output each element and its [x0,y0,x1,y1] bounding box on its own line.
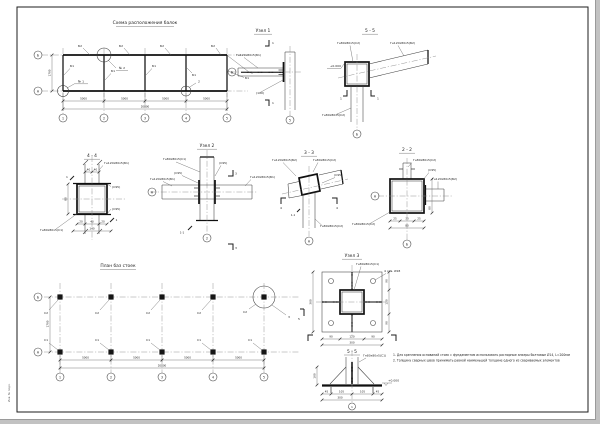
beam-label: Б1 [70,64,74,68]
dim: 80 [405,224,409,228]
beam-label: Б2 [119,44,123,48]
profile-callout: Гн80х80х5(С1) [163,157,186,161]
drawing-sheet-page: Инв. № подл. Схема расположения балок Б [0,0,600,424]
node-callout: № 1 [78,80,84,84]
beam-label: Б1 [245,76,249,80]
post-label: С1 [197,338,201,342]
dim-height: 1700 [48,69,52,76]
view-title: 2 - 2 [402,147,412,153]
view-title: План баз стоек [100,262,136,269]
profile-callout: Гн80х80х5(С2) [313,158,336,162]
column-marker [108,294,113,299]
dim-total: 20000 [141,104,150,108]
bolt-hole [371,279,376,284]
dim-bay: 5000 [121,96,128,100]
dim: 140 [89,227,94,231]
view-section-2-2: 2 - 2 А Б 80 25 30 25 [352,147,457,248]
view-title: Узел 3 [345,253,360,259]
drawing-canvas: Инв. № подл. Схема расположения балок Б [0,0,600,424]
post-label: С1 [146,338,150,342]
weld-callout: (С95) [112,207,120,211]
column-marker [159,294,164,299]
section-cut-mark [308,335,313,341]
section-cut-label: 1-1 [180,231,185,235]
dim-bay: 5000 [133,355,140,359]
dim: 40 [90,220,94,224]
axis-label: 3 [144,116,146,120]
dim: 120 [385,299,389,304]
section-cut-label: 5 [298,317,300,321]
axis-label: 3 [161,375,163,379]
beam-label: Б2 [211,44,215,48]
weld-callout: (С95) [219,161,227,165]
section-cut-label: 3 [235,172,237,176]
profile-callout: Гн120х80х5(Б1) [236,53,261,57]
notes-block: 1. Для крепления оснований стоек с фунда… [393,352,571,363]
view-title: Схема расположения балок [113,19,178,26]
profile-callout: Гн80х80х5(С1) [363,354,386,358]
section-cut-label: 1 [272,41,274,45]
axis-label: 2 [206,236,208,240]
profile-callout: Гн120х80х5(Б1) [104,161,129,165]
view-section-5-5-base: 5 - 5 Гн80х80х5(С1) +0.000 100 45 105 10… [313,349,400,410]
dim: 105 [360,390,365,394]
column-marker [210,294,215,299]
column-marker [57,294,62,299]
section-cut-label: 1 [66,175,68,179]
section-cut-mark [332,198,337,204]
beam-label: Б1 [192,73,196,77]
column-marker [261,349,266,354]
dim: 90 [329,335,333,339]
beam-label: Б2 [78,44,82,48]
axis-label: 1 [59,375,61,379]
post-label: С1 [95,338,99,342]
dim-bay: 5000 [162,96,169,100]
view-section-5-5-top: 5 - 5 Б +0.000 1 1 Гн80х80х5(С2) Гн120х8… [322,28,436,138]
dim-bay: 5000 [80,96,87,100]
section-cut-label: 1 [116,218,118,222]
dim: 80 [428,206,432,210]
view-base-plan: План баз стоек Б А 1 2 3 [34,262,304,381]
level-mark: +0.000 [330,64,341,68]
axis-label: 5 [226,116,228,120]
dim: 25 [393,217,397,221]
dim: 100 [313,373,317,378]
node-callout: 2 [198,80,200,84]
profile-callout: Гн120х80х5(Б1) [150,177,175,181]
node-callout: № 2 [119,66,125,70]
axis-label: 2 [103,116,105,120]
dim: 300 [337,396,342,400]
view-title: 5 - 5 [365,28,375,34]
dim: 90 [371,335,375,339]
dim: 120 [349,335,354,339]
profile-callout: Гн120х80х5(Б2) [272,158,297,162]
post-label: С1 [248,338,252,342]
axis-label: А [37,89,40,93]
weld-callout: (С95) [334,173,342,177]
profile-callout: Гн80х80х5(С2) [322,113,345,117]
section-cut-label: 4 [280,206,282,210]
post-label: С2 [197,311,201,315]
section-cut-mark [343,90,347,96]
level-mark: +0.000 [388,379,399,383]
axis-label: Б [406,242,408,246]
dim: 105 [339,390,344,394]
column-marker [261,294,266,299]
section-cut-label: 1 [272,101,274,105]
axis-label: А [308,239,311,243]
axis-label: А [151,190,154,194]
section-cut-mark [371,90,375,96]
view-title: 3 - 3 [304,150,314,156]
view-title: Узел 1 [256,28,271,34]
axis-label: 1 [351,405,353,409]
level-mark-icon [384,383,388,386]
axis-label: 5 [289,118,291,122]
profile-callout: Гн120х80х5(Б1) [250,175,275,179]
axis-label: А [374,194,377,198]
section-cut-label: 4 [336,206,338,210]
axis-label: А [37,350,40,354]
bolt-hole [329,279,334,284]
dim: 45 [376,390,380,394]
bolt-hole [371,321,376,326]
column-marker [108,349,113,354]
dim: 90 [385,321,389,325]
dim: 25 [417,217,421,221]
axis-label: 4 [212,375,214,379]
weld-callout: (С95) [112,185,120,189]
drawing-frame [17,7,588,412]
dim: 45 [325,390,329,394]
note-line: 1. Для крепления оснований стоек с фунда… [393,352,571,357]
post-label: С2 [95,311,99,315]
section-cut-label: 3 [235,246,237,250]
node-callout: 3 [288,315,290,319]
section-cut-mark [265,40,269,46]
axis-label: Б [37,53,39,57]
column-marker [159,349,164,354]
view-section-3-3: 3 - 3 А 4 4 Гн120х80х5(Б2) Гн80х80х5(С2)… [272,150,348,245]
dim: 20 [101,220,105,224]
note-line: 2. Толщину сварных швов принимать равной… [393,359,560,363]
post-label: С2 [146,311,150,315]
dim: 30 [405,217,409,221]
profile-callout: Гн120х80х5(Б2) [432,177,457,181]
profile-callout: Гн80х80х5(С2) [337,41,360,45]
dim-bay: 5000 [82,355,89,359]
axis-label: 4 [185,116,187,120]
dim: 40 [87,168,91,172]
profile-callout: Гн80х80х5(С2) [320,224,343,228]
dim: 20 [79,220,83,224]
dim: 90 [385,279,389,283]
dim: 40 [94,168,98,172]
profile-callout: Гн80х80х5(С1) [40,228,63,232]
section-cut-label: 1-1 [291,213,296,217]
profile-callout: Гн80х80х5(С2) [413,158,436,162]
section-cut-mark [281,198,286,204]
view-node-2: Узел 2 А 2 3 3 Гн80х80х [148,143,275,250]
holes-callout: 4 отв. Ø18 [384,268,400,273]
dim: 300 [349,341,354,345]
beam-label: Б2 [160,44,164,48]
axis-label: 1 [62,116,64,120]
profile-callout: Гн120х80х5(Б2) [390,41,415,45]
bolt-hole [329,321,334,326]
view-section-4-4: 4 - 4 40 40 80 20 40 [40,153,129,240]
dim-bay: 5000 [235,355,242,359]
view-node-1: Узел 1 1 1 Б 5 Гн120х80х5(Б1) (100) [228,28,302,124]
dim-bay: 5000 [184,355,191,359]
dim-total: 20000 [158,363,167,367]
view-node-3: Узел 3 Гн80х80х5(С1) 4 отв. Ø18 [308,253,400,346]
view-beam-scheme: Схема расположения балок Б А 1 2 [34,19,253,122]
section-cut-mark [110,218,114,222]
post-label: С1 [44,338,48,342]
section-cut-label: 1 [340,97,342,101]
section-cut-mark [228,170,233,176]
post-label: С2 [44,311,48,315]
profile-callout: Гн80х80х5(С1) [356,262,379,266]
beam-label: Б1 [152,64,156,68]
view-title: Узел 2 [200,143,215,149]
dim-height: 1700 [46,320,50,327]
beam-label: Б1 [111,69,115,73]
post-label: С2 [243,310,247,314]
section-cut-label: 1 [377,97,379,101]
dim: 300 [309,299,313,304]
column-marker [57,349,62,354]
section-cut-mark [228,244,233,250]
weld-callout: (С95) [174,171,182,175]
column-marker [210,349,215,354]
section-cut-mark [265,100,269,106]
section-cut-mark [391,335,396,341]
axis-label: Б [356,132,358,136]
section-cut-mark [70,176,74,180]
weld-callout: (С95) [428,168,436,172]
margin-stamp: Инв. № подл. [7,383,11,402]
axis-label: Б [37,295,39,299]
dim-bay: 5000 [203,96,210,100]
axis-label: 5 [263,375,265,379]
axis-label: 2 [110,375,112,379]
axis-label: Б [231,70,233,74]
weld-callout: (100) [256,91,264,95]
dim: 80 [64,197,68,201]
